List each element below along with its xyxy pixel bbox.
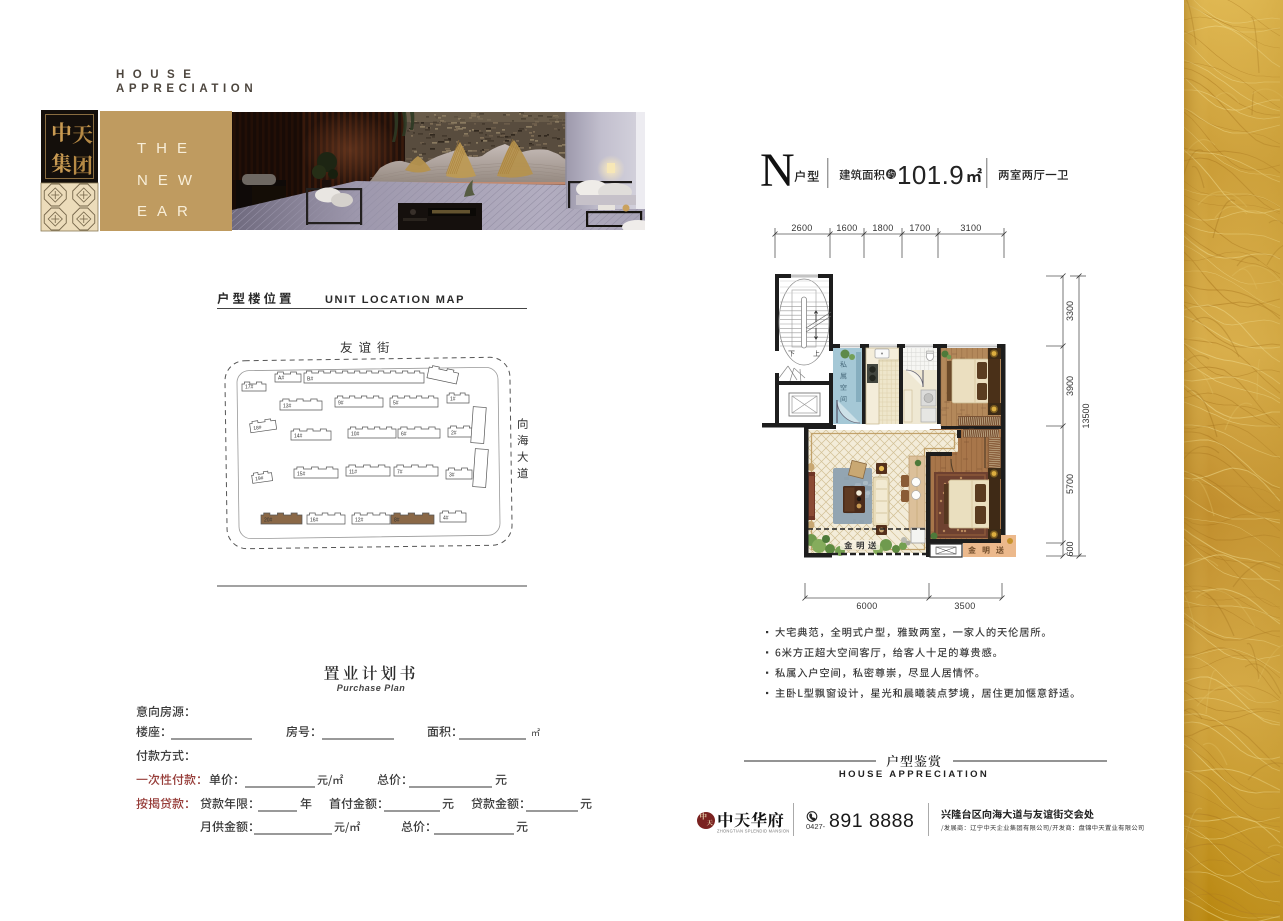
svg-text:18#: 18# <box>253 425 262 432</box>
svg-text:17#: 17# <box>245 385 254 391</box>
svg-text:3500: 3500 <box>954 601 975 611</box>
svg-text:B#: B# <box>307 377 313 383</box>
svg-text:13500: 13500 <box>1081 403 1091 428</box>
svg-text:7#: 7# <box>397 470 403 476</box>
svg-text:9#: 9# <box>338 401 344 407</box>
svg-text:16#: 16# <box>310 518 319 524</box>
svg-text:20#: 20# <box>264 518 273 524</box>
svg-text:101.9: 101.9 <box>897 160 964 190</box>
svg-text:EAR: EAR <box>137 203 198 220</box>
svg-text:Purchase Plan: Purchase Plan <box>337 683 406 693</box>
svg-text:HOUSE: HOUSE <box>116 69 199 81</box>
svg-text:UNIT LOCATION MAP: UNIT LOCATION MAP <box>325 294 465 306</box>
svg-text:15#: 15# <box>297 472 306 478</box>
svg-text:1800: 1800 <box>872 223 893 233</box>
svg-text:19#: 19# <box>255 475 264 482</box>
svg-text:A#: A# <box>278 376 284 382</box>
svg-text:10#: 10# <box>351 432 360 438</box>
svg-text:5#: 5# <box>393 401 399 407</box>
svg-text:600: 600 <box>1065 541 1075 556</box>
svg-text:0427-: 0427- <box>806 822 826 831</box>
svg-text:11#: 11# <box>349 470 357 476</box>
svg-text:1600: 1600 <box>836 223 857 233</box>
svg-text:5700: 5700 <box>1065 474 1075 494</box>
svg-text:N: N <box>760 144 795 197</box>
svg-text:3300: 3300 <box>1065 301 1075 321</box>
svg-text:HOUSE APPRECIATION: HOUSE APPRECIATION <box>839 769 989 780</box>
svg-text:891 8888: 891 8888 <box>829 810 914 832</box>
svg-text:2#: 2# <box>451 431 457 437</box>
svg-text:3100: 3100 <box>960 223 981 233</box>
svg-text:4#: 4# <box>443 516 449 522</box>
svg-text:3900: 3900 <box>1065 376 1075 396</box>
svg-text:6000: 6000 <box>856 601 877 611</box>
svg-text:APPRECIATION: APPRECIATION <box>116 83 257 95</box>
svg-text:1#: 1# <box>450 397 456 403</box>
svg-text:THE: THE <box>137 140 197 157</box>
svg-text:3#: 3# <box>449 473 455 479</box>
svg-text:12#: 12# <box>355 518 364 524</box>
svg-text:14#: 14# <box>294 434 303 440</box>
svg-text:1700: 1700 <box>909 223 930 233</box>
svg-text:13#: 13# <box>283 404 292 410</box>
svg-text:ZHONGTIAN SPLENDID MANSION: ZHONGTIAN SPLENDID MANSION <box>717 829 789 834</box>
svg-text:NEW: NEW <box>137 172 202 189</box>
svg-text:8#: 8# <box>394 518 400 524</box>
svg-text:2600: 2600 <box>791 223 812 233</box>
svg-text:6#: 6# <box>401 432 407 438</box>
